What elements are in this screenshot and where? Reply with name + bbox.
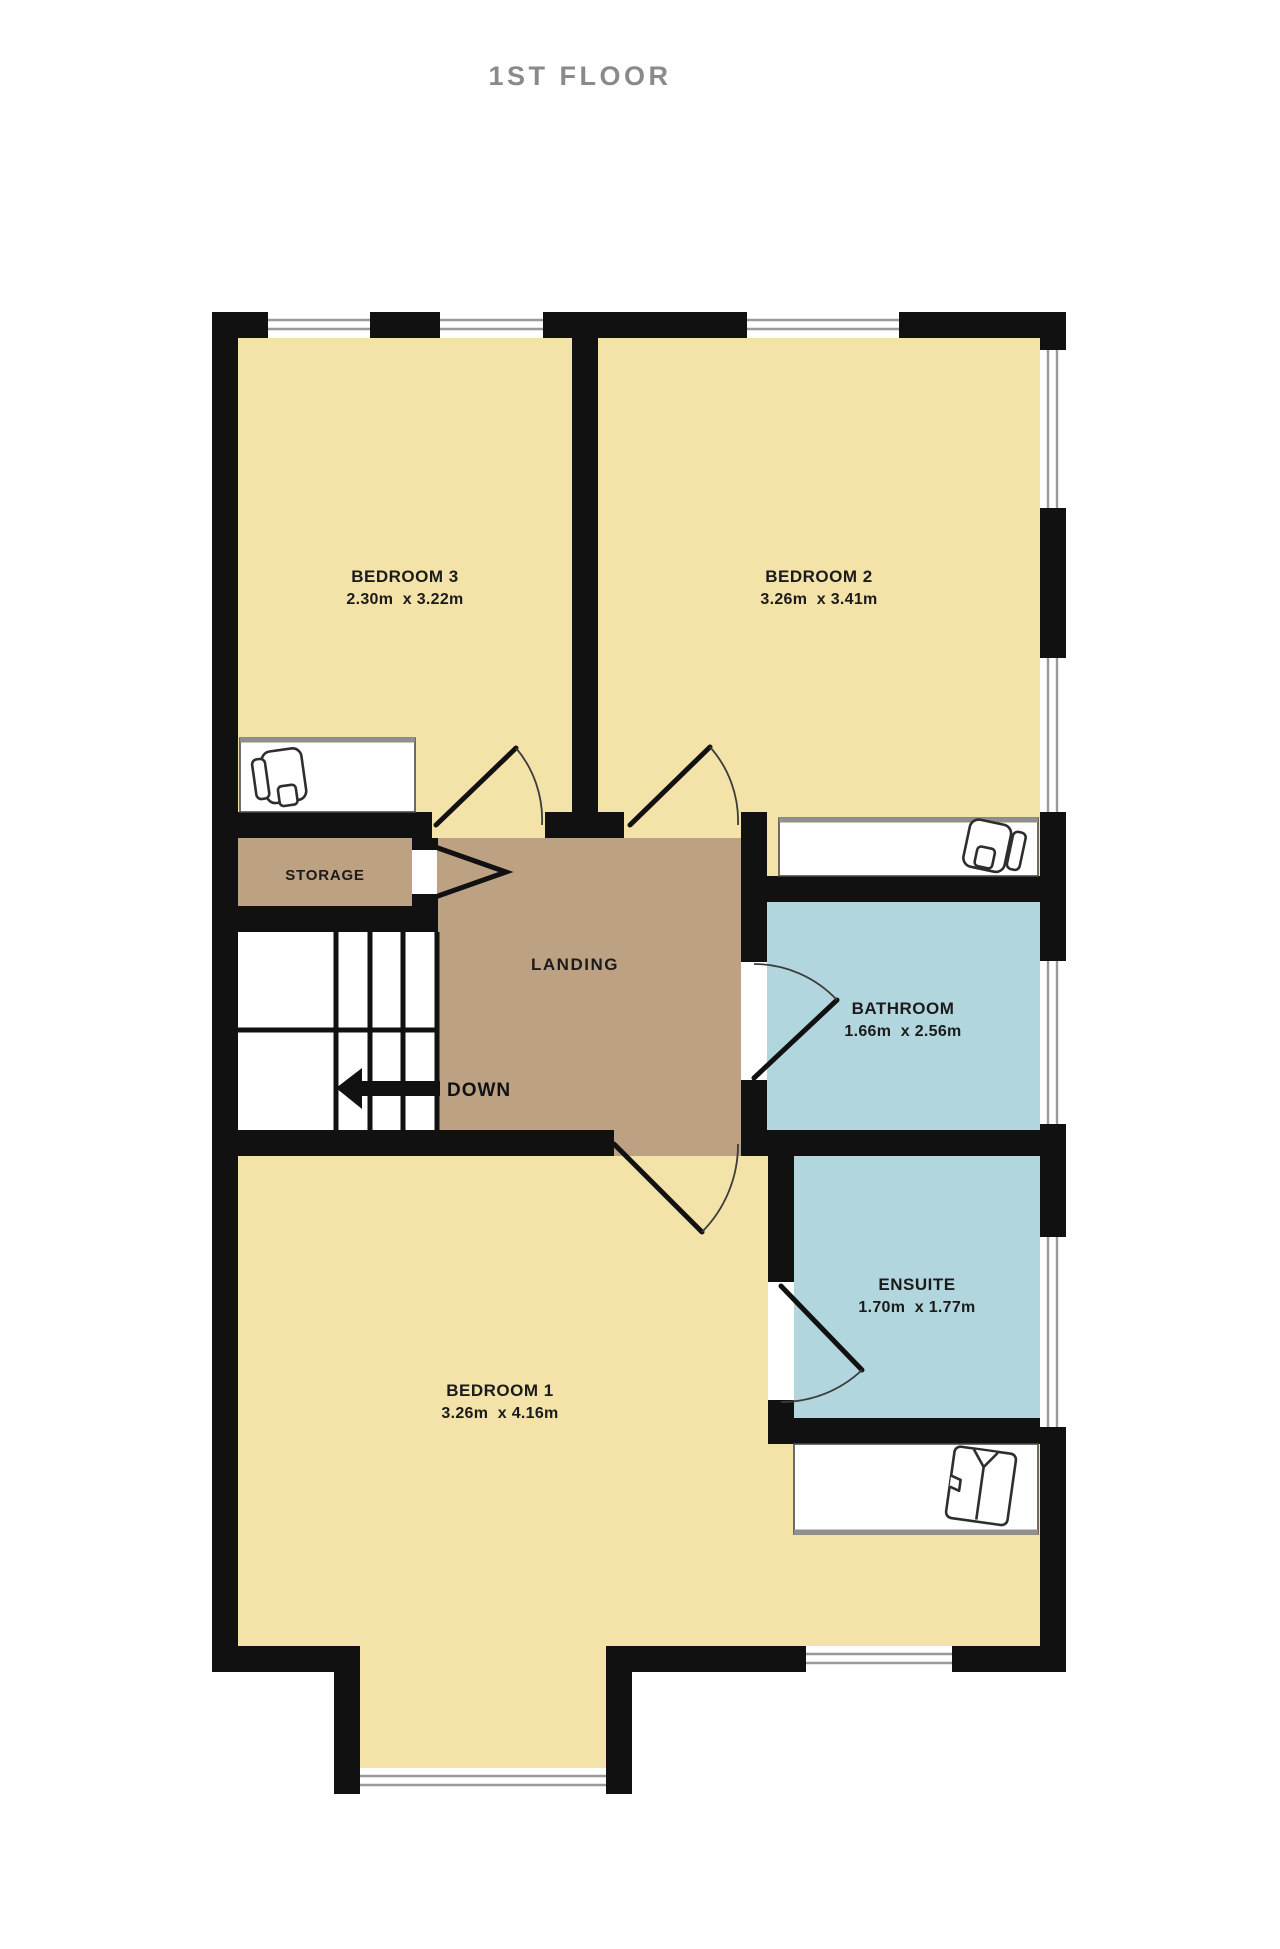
- chair-cushion: [277, 784, 298, 806]
- top-wall-segment: [543, 312, 747, 338]
- bedroom-divider-wall: [572, 338, 598, 812]
- floorplan-svg: 1ST FLOOR: [0, 0, 1280, 1949]
- top-wall-segment: [370, 312, 440, 338]
- right-outer-wall-segment: [1040, 508, 1066, 658]
- ensuite-left-wall-upper: [768, 1156, 794, 1282]
- landing-bedroom1-wall: [238, 1130, 614, 1156]
- bedrooms-landing-wall: [545, 812, 624, 838]
- bathroom-label: BATHROOM: [852, 999, 955, 1018]
- bay-window: [360, 1768, 606, 1794]
- ensuite-label: ENSUITE: [878, 1275, 955, 1294]
- bedroom-1-door-threshold: [614, 1130, 741, 1156]
- window: [440, 312, 543, 338]
- bedroom-1-label: BEDROOM 1: [446, 1381, 553, 1400]
- bedroom2-bathroom-wall: [741, 876, 1040, 902]
- right-outer-wall-segment: [1040, 1124, 1066, 1237]
- bedroom-2-dims: 3.26m x 3.41m: [760, 591, 877, 608]
- bedroom-3-dims: 2.30m x 3.22m: [346, 591, 463, 608]
- chair-cushion: [974, 846, 996, 869]
- window: [268, 312, 370, 338]
- bathroom-left-wall-upper: [741, 812, 767, 962]
- down-label: DOWN: [447, 1080, 511, 1101]
- landing-label: LANDING: [531, 955, 619, 974]
- right-outer-wall-segment: [1040, 1427, 1066, 1672]
- floorplan-page: 1ST FLOOR: [0, 0, 1280, 1949]
- bedroom-2-label: BEDROOM 2: [765, 567, 872, 586]
- window: [1040, 1237, 1066, 1427]
- shirt-icon: [945, 1446, 1016, 1526]
- bay-left-wall: [334, 1646, 360, 1794]
- storage-wall-stub: [412, 894, 438, 906]
- room-bedroom-1-bay: [360, 1646, 606, 1768]
- bedroom-3-label: BEDROOM 3: [351, 567, 458, 586]
- ensuite-dims: 1.70m x 1.77m: [858, 1299, 975, 1316]
- bay-right-wall: [606, 1646, 632, 1794]
- top-wall-segment: [212, 312, 268, 338]
- window: [747, 312, 899, 338]
- bottom-wall-right: [606, 1646, 806, 1672]
- bedroom3-landing-wall: [238, 812, 432, 838]
- bottom-wall-corner: [952, 1646, 1066, 1672]
- bathroom-ensuite-wall: [741, 1130, 1040, 1156]
- storage-stairs-wall: [238, 906, 438, 932]
- window: [806, 1646, 952, 1672]
- storage-wall-stub: [412, 838, 438, 850]
- window: [1040, 350, 1066, 508]
- floor-title: 1ST FLOOR: [488, 61, 671, 91]
- left-outer-wall: [212, 312, 238, 1672]
- right-outer-wall-segment: [1040, 812, 1066, 961]
- room-fills: [238, 338, 1040, 1768]
- bedroom-1-dims: 3.26m x 4.16m: [441, 1405, 558, 1422]
- room-bedroom-1: [238, 1156, 768, 1646]
- ensuite-bottom-wall: [768, 1418, 1040, 1444]
- right-outer-wall-segment: [1040, 312, 1066, 350]
- bathroom-dims: 1.66m x 2.56m: [844, 1023, 961, 1040]
- window: [1040, 961, 1066, 1124]
- window: [1040, 658, 1066, 812]
- storage-label: STORAGE: [285, 867, 365, 884]
